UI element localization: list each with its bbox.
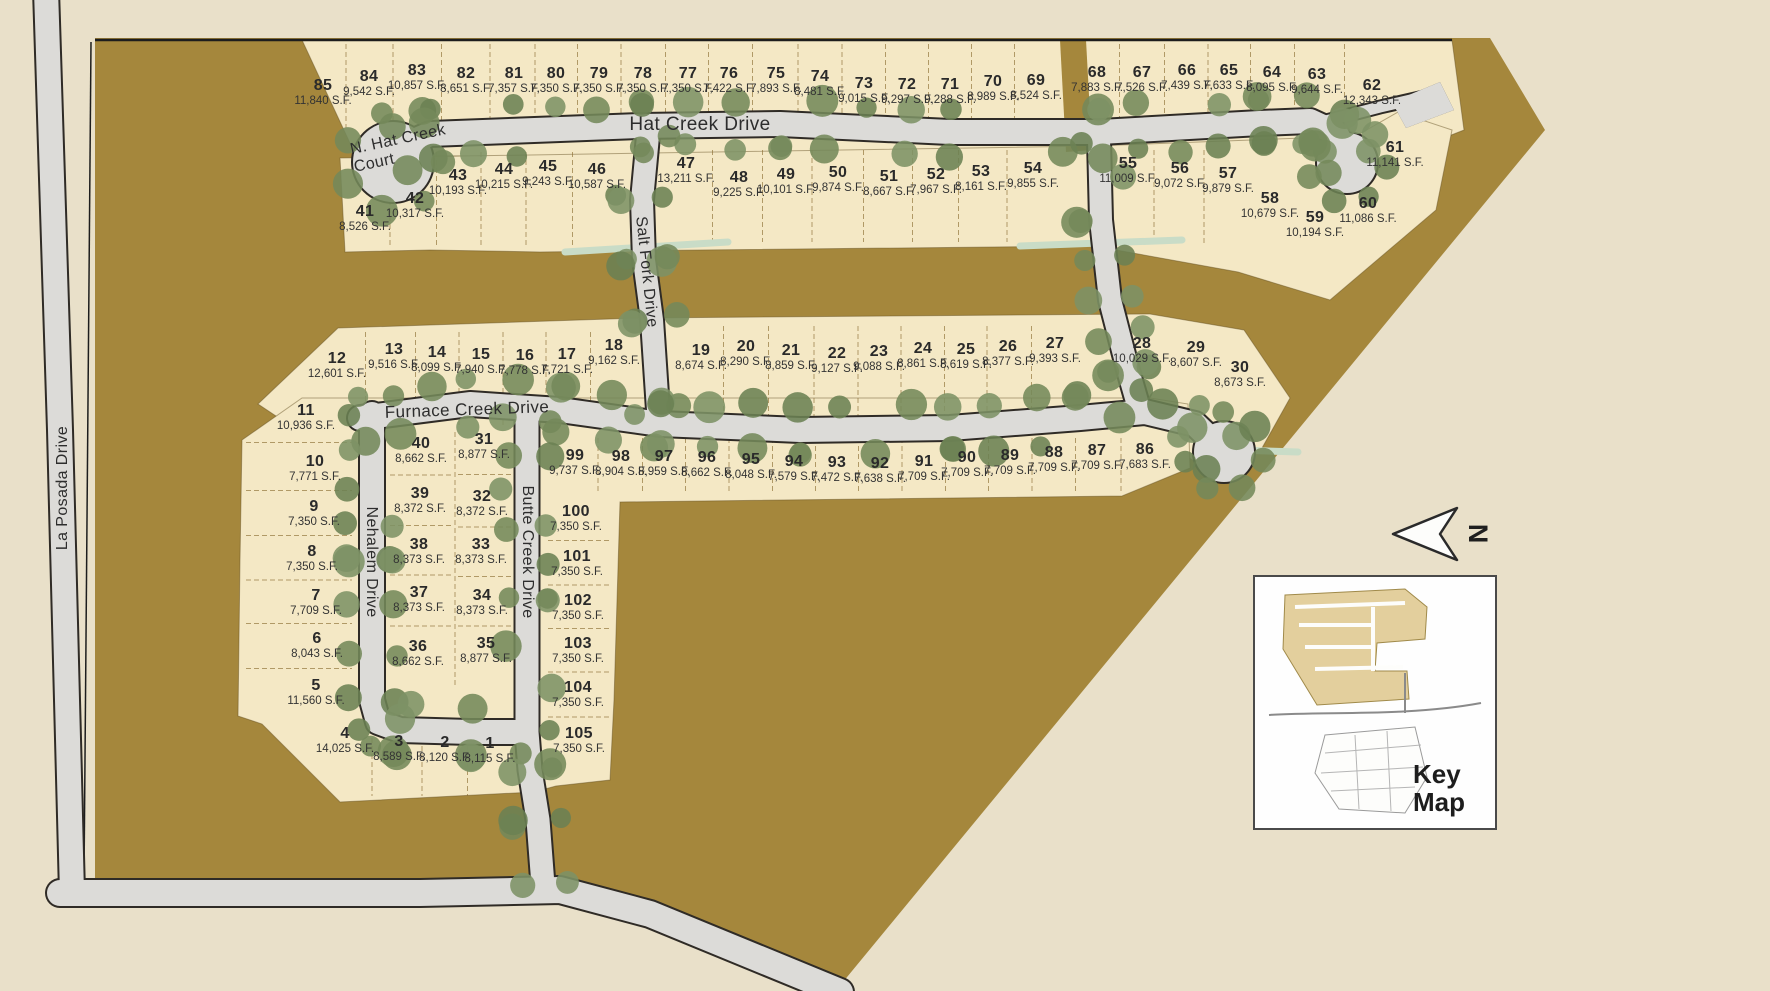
lot-number: 10: [289, 453, 341, 471]
lot-number: 17: [541, 346, 593, 364]
lot-number: 47: [657, 155, 714, 173]
lot-number: 35: [460, 635, 512, 653]
lot-number: 29: [1170, 339, 1222, 357]
lot-2[interactable]: 28,120 S.F.: [419, 734, 471, 764]
lot-number: 12: [308, 350, 366, 368]
lot-39[interactable]: 398,372 S.F.: [394, 485, 446, 515]
lot-number: 46: [568, 161, 626, 179]
key-map-label: Key Map: [1413, 760, 1485, 816]
lot-sqft: 8,043 S.F.: [291, 647, 343, 660]
lot-number: 100: [550, 503, 602, 521]
lot-33[interactable]: 338,373 S.F.: [455, 536, 507, 566]
lot-66[interactable]: 667,439 S.F.: [1161, 62, 1213, 92]
lot-number: 49: [757, 166, 815, 184]
lot-sqft: 8,526 S.F.: [339, 220, 391, 233]
lot-number: 34: [456, 587, 508, 605]
lot-number: 60: [1339, 195, 1396, 213]
lot-sqft: 10,317 S.F.: [386, 207, 444, 220]
lot-86[interactable]: 867,683 S.F.: [1119, 441, 1171, 471]
lot-number: 3: [373, 733, 425, 751]
lot-sqft: 10,936 S.F.: [277, 419, 335, 432]
lot-number: 102: [552, 592, 604, 610]
lot-number: 58: [1241, 190, 1299, 208]
lot-7[interactable]: 77,709 S.F.: [290, 587, 342, 617]
lot-number: 18: [588, 337, 640, 355]
lot-sqft: 7,883 S.F.: [1071, 81, 1123, 94]
lot-47[interactable]: 4713,211 S.F.: [657, 155, 714, 185]
lot-number: 101: [551, 548, 603, 566]
lot-81[interactable]: 817,357 S.F.: [488, 65, 540, 95]
lot-sqft: 7,350 S.F.: [288, 515, 340, 528]
lot-sqft: 7,683 S.F.: [1119, 458, 1171, 471]
lot-83[interactable]: 8310,857 S.F.: [388, 62, 446, 92]
lot-sqft: 9,737 S.F.: [549, 464, 601, 477]
lot-53[interactable]: 538,161 S.F.: [955, 163, 1007, 193]
lot-sqft: 10,029 S.F.: [1113, 352, 1171, 365]
lot-55[interactable]: 5511,009 S.F.: [1099, 155, 1156, 185]
lot-number: 83: [388, 62, 446, 80]
key-map: Key Map: [1253, 575, 1497, 830]
lot-sqft: 9,855 S.F.: [1007, 177, 1059, 190]
lot-1[interactable]: 18,115 S.F.: [465, 735, 516, 765]
lot-102[interactable]: 1027,350 S.F.: [552, 592, 604, 622]
lot-number: 63: [1291, 66, 1343, 84]
lot-17[interactable]: 177,721 S.F.: [541, 346, 593, 376]
lot-36[interactable]: 368,662 S.F.: [392, 638, 444, 668]
lot-sqft: 10,101 S.F.: [757, 183, 815, 196]
lot-10[interactable]: 107,771 S.F.: [289, 453, 341, 483]
lot-101[interactable]: 1017,350 S.F.: [551, 548, 603, 578]
lot-45[interactable]: 459,243 S.F.: [522, 158, 574, 188]
lot-sqft: 8,651 S.F.: [440, 82, 492, 95]
lot-number: 37: [393, 584, 445, 602]
lot-sqft: 7,893 S.F.: [750, 82, 802, 95]
lot-number: 40: [395, 435, 447, 453]
lot-number: 98: [595, 448, 647, 466]
lot-sqft: 7,350 S.F.: [286, 560, 338, 573]
lot-number: 59: [1286, 209, 1344, 227]
lot-number: 36: [392, 638, 444, 656]
lot-40[interactable]: 408,662 S.F.: [395, 435, 447, 465]
lot-sqft: 9,644 S.F.: [1291, 83, 1343, 96]
lot-sqft: 8,120 S.F.: [419, 751, 471, 764]
lot-77[interactable]: 777,350 S.F.: [662, 65, 714, 95]
lot-sqft: 8,372 S.F.: [394, 502, 446, 515]
lot-sqft: 7,350 S.F.: [551, 565, 603, 578]
lot-68[interactable]: 687,883 S.F.: [1071, 64, 1123, 94]
lot-34[interactable]: 348,373 S.F.: [456, 587, 508, 617]
lot-number: 26: [982, 338, 1034, 356]
lot-sqft: 8,589 S.F.: [373, 750, 425, 763]
lot-number: 8: [286, 543, 338, 561]
lot-60[interactable]: 6011,086 S.F.: [1339, 195, 1396, 225]
lot-number: 55: [1099, 155, 1156, 173]
lot-number: 105: [553, 725, 605, 743]
lot-103[interactable]: 1037,350 S.F.: [552, 635, 604, 665]
lot-sqft: 11,141 S.F.: [1366, 156, 1423, 169]
lot-sqft: 9,393 S.F.: [1029, 352, 1081, 365]
lot-number: 67: [1116, 64, 1168, 82]
lot-number: 11: [277, 402, 335, 420]
lot-number: 45: [522, 158, 574, 176]
lot-82[interactable]: 828,651 S.F.: [440, 65, 492, 95]
lot-sqft: 7,771 S.F.: [289, 470, 341, 483]
lot-sqft: 8,667 S.F.: [863, 185, 915, 198]
lot-number: 85: [294, 77, 351, 95]
lot-number: 68: [1071, 64, 1123, 82]
lot-sqft: 7,350 S.F.: [662, 82, 714, 95]
lot-sqft: 13,211 S.F.: [657, 172, 714, 185]
lot-sqft: 7,350 S.F.: [552, 609, 604, 622]
lot-sqft: 8,373 S.F.: [393, 553, 445, 566]
lot-sqft: 11,009 S.F.: [1099, 172, 1156, 185]
lot-number: 6: [291, 630, 343, 648]
plat-drawing: [0, 0, 1770, 991]
lot-85[interactable]: 8511,840 S.F.: [294, 77, 351, 107]
lot-21[interactable]: 218,859 S.F.: [765, 342, 817, 372]
lot-number: 62: [1343, 77, 1401, 95]
lot-number: 66: [1161, 62, 1213, 80]
lot-75[interactable]: 757,893 S.F.: [750, 65, 802, 95]
lot-number: 75: [750, 65, 802, 83]
lot-number: 50: [812, 164, 864, 182]
lot-32[interactable]: 328,372 S.F.: [456, 488, 508, 518]
lot-5[interactable]: 511,560 S.F.: [287, 677, 344, 707]
lot-number: 61: [1366, 139, 1423, 157]
lot-sqft: 8,377 S.F.: [982, 355, 1034, 368]
lot-46[interactable]: 4610,587 S.F.: [568, 161, 626, 191]
lot-number: 86: [1119, 441, 1171, 459]
lot-number: 4: [316, 725, 374, 743]
lot-31[interactable]: 318,877 S.F.: [458, 431, 510, 461]
lot-number: 33: [455, 536, 507, 554]
north-label: N: [1463, 524, 1494, 544]
lot-63[interactable]: 639,644 S.F.: [1291, 66, 1343, 96]
lot-67[interactable]: 677,526 S.F.: [1116, 64, 1168, 94]
lot-sqft: 10,194 S.F.: [1286, 226, 1344, 239]
lot-sqft: 12,601 S.F.: [308, 367, 366, 380]
lot-number: 53: [955, 163, 1007, 181]
lot-sqft: 8,373 S.F.: [393, 601, 445, 614]
lot-sqft: 7,709 S.F.: [290, 604, 342, 617]
lot-number: 77: [662, 65, 714, 83]
lot-27[interactable]: 279,393 S.F.: [1029, 335, 1081, 365]
lot-number: 104: [552, 679, 604, 697]
lot-sqft: 8,372 S.F.: [456, 505, 508, 518]
lot-4[interactable]: 414,025 S.F.: [316, 725, 374, 755]
lot-35[interactable]: 358,877 S.F.: [460, 635, 512, 665]
lot-number: 32: [456, 488, 508, 506]
lot-number: 38: [393, 536, 445, 554]
lot-number: 56: [1154, 160, 1206, 178]
lot-sqft: 8,904 S.F.: [595, 465, 647, 478]
lot-number: 9: [288, 498, 340, 516]
lot-sqft: 12,343 S.F.: [1343, 94, 1401, 107]
lot-sqft: 9,072 S.F.: [1154, 177, 1206, 190]
lot-28[interactable]: 2810,029 S.F.: [1113, 335, 1171, 365]
lot-3[interactable]: 38,589 S.F.: [373, 733, 425, 763]
lot-sqft: 8,877 S.F.: [460, 652, 512, 665]
lot-99[interactable]: 999,737 S.F.: [549, 447, 601, 477]
lot-sqft: 7,350 S.F.: [552, 652, 604, 665]
lot-sqft: 7,439 S.F.: [1161, 79, 1213, 92]
lot-sqft: 11,086 S.F.: [1339, 212, 1396, 225]
lot-sqft: 8,662 S.F.: [392, 655, 444, 668]
lot-sqft: 11,840 S.F.: [294, 94, 351, 107]
lot-18[interactable]: 189,162 S.F.: [588, 337, 640, 367]
lot-sqft: 10,857 S.F.: [388, 79, 446, 92]
site-plan-map: La Posada DriveHat Creek DriveN. Hat Cre…: [0, 0, 1770, 991]
lot-sqft: 8,877 S.F.: [458, 448, 510, 461]
lot-54[interactable]: 549,855 S.F.: [1007, 160, 1059, 190]
lot-number: 28: [1113, 335, 1171, 353]
lot-number: 103: [552, 635, 604, 653]
lot-51[interactable]: 518,667 S.F.: [863, 168, 915, 198]
lot-sqft: 8,859 S.F.: [765, 359, 817, 372]
lot-number: 5: [287, 677, 344, 695]
lot-sqft: 9,162 S.F.: [588, 354, 640, 367]
lot-number: 7: [290, 587, 342, 605]
lot-61[interactable]: 6111,141 S.F.: [1366, 139, 1423, 169]
north-indicator: N: [1385, 498, 1505, 572]
lot-105[interactable]: 1057,350 S.F.: [553, 725, 605, 755]
lot-sqft: 7,721 S.F.: [541, 363, 593, 376]
lot-sqft: 7,357 S.F.: [488, 82, 540, 95]
lot-number: 27: [1029, 335, 1081, 353]
lot-11[interactable]: 1110,936 S.F.: [277, 402, 335, 432]
lot-sqft: 9,874 S.F.: [812, 181, 864, 194]
lot-sqft: 8,373 S.F.: [455, 553, 507, 566]
lot-50[interactable]: 509,874 S.F.: [812, 164, 864, 194]
lot-number: 30: [1214, 359, 1266, 377]
lot-sqft: 7,350 S.F.: [552, 696, 604, 709]
lot-37[interactable]: 378,373 S.F.: [393, 584, 445, 614]
lot-number: 21: [765, 342, 817, 360]
lot-sqft: 7,526 S.F.: [1116, 81, 1168, 94]
lot-sqft: 8,161 S.F.: [955, 180, 1007, 193]
lot-98[interactable]: 988,904 S.F.: [595, 448, 647, 478]
lot-sqft: 14,025 S.F.: [316, 742, 374, 755]
lot-number: 99: [549, 447, 601, 465]
lot-30[interactable]: 308,673 S.F.: [1214, 359, 1266, 389]
lot-8[interactable]: 87,350 S.F.: [286, 543, 338, 573]
lot-12[interactable]: 1212,601 S.F.: [308, 350, 366, 380]
lot-59[interactable]: 5910,194 S.F.: [1286, 209, 1344, 239]
lot-26[interactable]: 268,377 S.F.: [982, 338, 1034, 368]
lot-sqft: 7,350 S.F.: [553, 742, 605, 755]
lot-number: 51: [863, 168, 915, 186]
lot-number: 81: [488, 65, 540, 83]
lot-41[interactable]: 418,526 S.F.: [339, 203, 391, 233]
lot-number: 31: [458, 431, 510, 449]
lot-number: 39: [394, 485, 446, 503]
lot-number: 82: [440, 65, 492, 83]
lot-38[interactable]: 388,373 S.F.: [393, 536, 445, 566]
lot-sqft: 8,673 S.F.: [1214, 376, 1266, 389]
lot-number: 57: [1202, 165, 1254, 183]
lot-sqft: 9,243 S.F.: [522, 175, 574, 188]
lot-104[interactable]: 1047,350 S.F.: [552, 679, 604, 709]
lot-sqft: 7,350 S.F.: [550, 520, 602, 533]
lot-62[interactable]: 6212,343 S.F.: [1343, 77, 1401, 107]
lot-sqft: 8,373 S.F.: [456, 604, 508, 617]
lot-number: 41: [339, 203, 391, 221]
lot-sqft: 10,587 S.F.: [568, 178, 626, 191]
lot-100[interactable]: 1007,350 S.F.: [550, 503, 602, 533]
lot-sqft: 8,662 S.F.: [395, 452, 447, 465]
lot-sqft: 11,560 S.F.: [287, 694, 344, 707]
lot-49[interactable]: 4910,101 S.F.: [757, 166, 815, 196]
lot-number: 1: [465, 735, 516, 753]
lot-6[interactable]: 68,043 S.F.: [291, 630, 343, 660]
lot-9[interactable]: 97,350 S.F.: [288, 498, 340, 528]
lot-number: 54: [1007, 160, 1059, 178]
lot-56[interactable]: 569,072 S.F.: [1154, 160, 1206, 190]
lot-sqft: 8,115 S.F.: [465, 752, 516, 765]
lot-number: 2: [419, 734, 471, 752]
